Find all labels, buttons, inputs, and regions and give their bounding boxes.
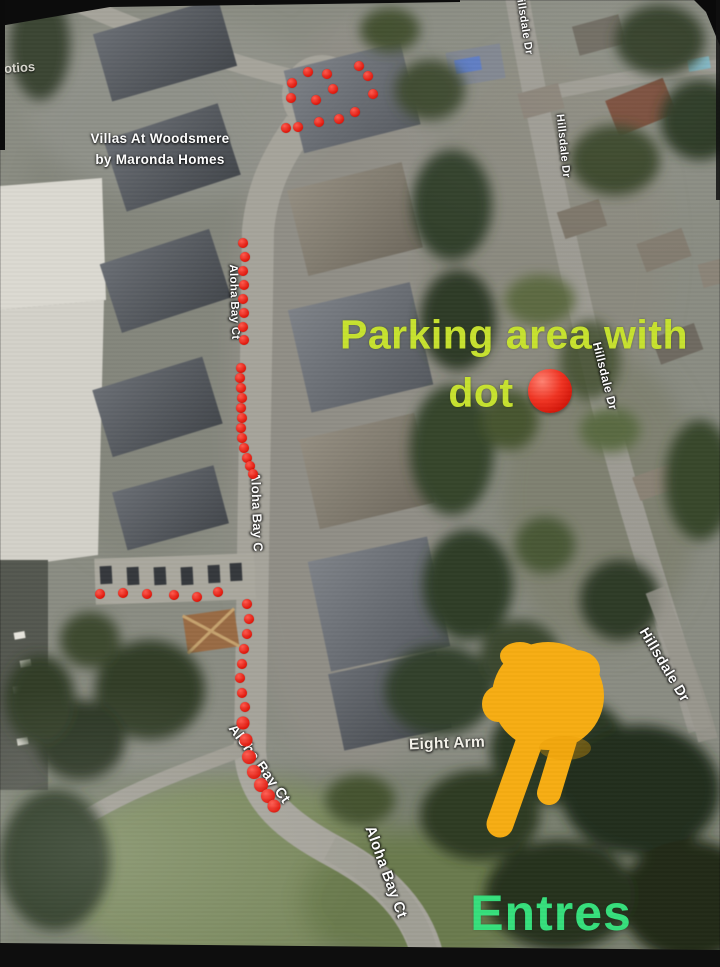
route-dot [236, 423, 246, 433]
route-dot [334, 114, 344, 124]
pointing-hand-down-left-icon [470, 630, 618, 845]
red-circle-icon [528, 369, 572, 413]
entrance-annotation: Entres [470, 884, 632, 942]
route-dot [314, 117, 324, 127]
route-dot [169, 590, 179, 600]
route-dot [239, 644, 249, 654]
route-dot [213, 587, 223, 597]
route-dot [303, 67, 313, 77]
route-dot [242, 750, 256, 764]
route-dot [95, 589, 105, 599]
route-dot [240, 702, 250, 712]
route-dot [238, 266, 248, 276]
route-dot [281, 123, 291, 133]
route-dot [237, 433, 247, 443]
route-dot [237, 659, 247, 669]
route-dot [242, 629, 252, 639]
route-dot [239, 280, 249, 290]
route-dot [354, 61, 364, 71]
route-dot [237, 717, 250, 730]
route-dot [239, 308, 249, 318]
route-dot [236, 363, 246, 373]
route-dot [240, 734, 253, 747]
route-dot [237, 413, 247, 423]
route-dot [236, 383, 246, 393]
route-dot [328, 84, 338, 94]
route-dot [235, 373, 245, 383]
route-dot [322, 69, 332, 79]
route-dot [286, 93, 296, 103]
route-dot [239, 335, 249, 345]
route-dot [237, 393, 247, 403]
route-dot [311, 95, 321, 105]
route-dot [268, 800, 281, 813]
route-dot [118, 588, 128, 598]
route-dot [248, 469, 258, 479]
route-dot [244, 614, 254, 624]
route-dot [238, 238, 248, 248]
route-dot [247, 765, 261, 779]
route-dot [293, 122, 303, 132]
route-dot [142, 589, 152, 599]
route-dot [238, 294, 248, 304]
route-dot [192, 592, 202, 602]
route-dot [237, 688, 247, 698]
route-dot [242, 599, 252, 609]
route-dot [240, 252, 250, 262]
route-dot [235, 673, 245, 683]
annotated-map-photo: Hillsdale Dr Hillsdale Dr Hillsdale Dr H… [0, 0, 720, 967]
parking-annotation-line1: Parking area with [340, 312, 688, 359]
route-dot [238, 322, 248, 332]
route-dot [236, 403, 246, 413]
parking-annotation-line2: dot [448, 370, 513, 417]
route-dot [363, 71, 373, 81]
route-dot [350, 107, 360, 117]
route-dot [239, 443, 249, 453]
route-dot [287, 78, 297, 88]
route-dot [368, 89, 378, 99]
